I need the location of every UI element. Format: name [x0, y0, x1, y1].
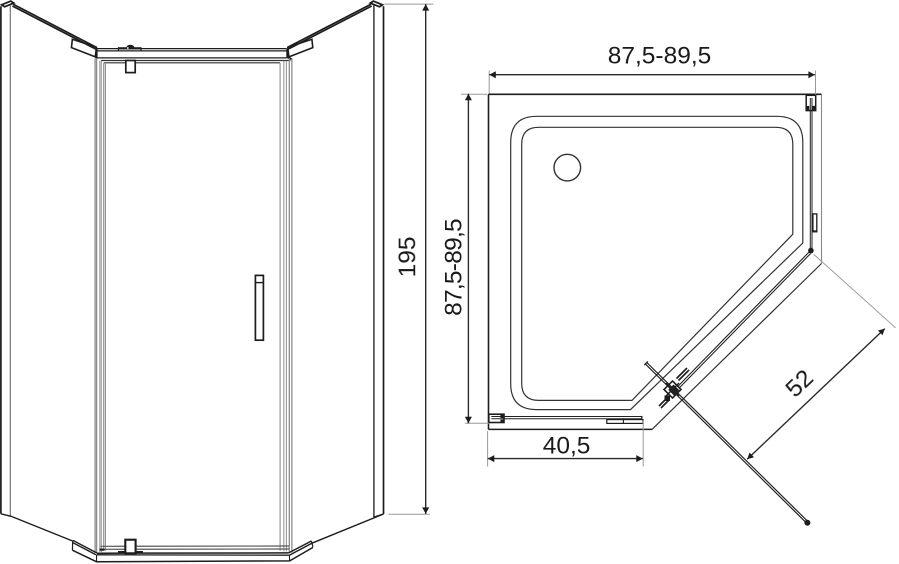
svg-text:195: 195	[394, 237, 421, 278]
svg-text:87,5-89,5: 87,5-89,5	[441, 219, 468, 316]
svg-text:87,5-89,5: 87,5-89,5	[608, 43, 712, 70]
svg-text:40,5: 40,5	[543, 432, 591, 459]
